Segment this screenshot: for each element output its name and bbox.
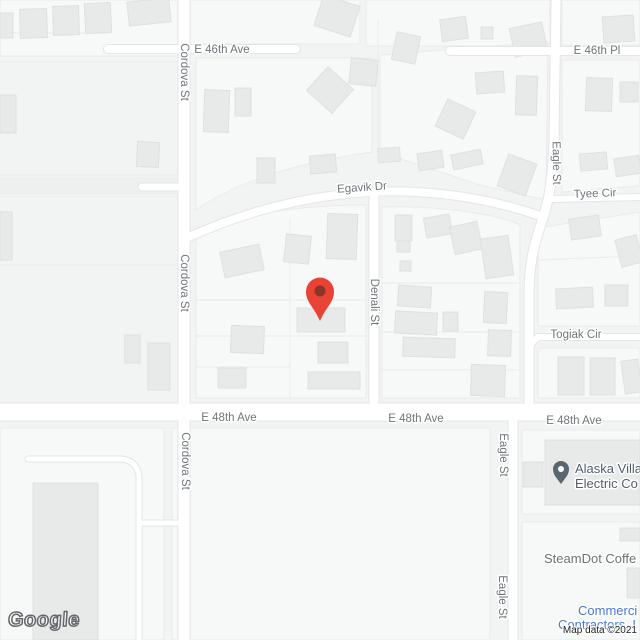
building-footprint (125, 335, 140, 363)
building-footprint (579, 152, 607, 171)
street-label: Cordova St (179, 432, 191, 490)
building-footprint (605, 285, 628, 306)
street-label: E 48th Ave (546, 415, 601, 427)
marker-pin-inner-circle (315, 286, 326, 297)
building-footprint (488, 330, 512, 357)
building-footprint (391, 32, 420, 64)
building-footprint (440, 16, 469, 41)
google-logo[interactable]: Google (7, 609, 80, 632)
poi-label-line[interactable]: Electric Co (575, 476, 638, 491)
building-footprint (284, 234, 312, 264)
building-footprint (148, 343, 170, 390)
street-label: E 48th Ave (201, 412, 256, 424)
block-s-mid (172, 428, 490, 640)
street-label: Cordova St (178, 254, 190, 312)
street-label: Denali St (368, 279, 380, 326)
poi-label-line[interactable]: Alaska Villa (575, 461, 640, 476)
map-viewport[interactable]: E 46th AveE 46th PlCordova StCordova StC… (0, 0, 640, 640)
building-footprint (395, 215, 412, 241)
building-footprint (0, 13, 13, 38)
building-footprint (378, 147, 401, 163)
building-footprint (475, 71, 504, 94)
building-footprint (449, 221, 482, 254)
building-footprint (136, 141, 159, 167)
poi-pin-dot (558, 466, 564, 472)
poi-label-line[interactable]: SteamDot Coffe (544, 551, 636, 566)
building-footprint (590, 358, 615, 395)
building-footprint (0, 95, 16, 133)
building-footprint (218, 368, 246, 388)
building-footprint (515, 76, 537, 116)
poi-steamdot-coffee[interactable]: SteamDot Coffe (544, 551, 636, 566)
street-label: E 46th Ave (194, 44, 249, 56)
building-footprint (349, 58, 379, 87)
building-footprint (443, 312, 458, 331)
building-footprint (203, 90, 229, 133)
building-footprint (523, 462, 543, 487)
map-attribution: Map data ©2021 (563, 625, 637, 636)
building-footprint (483, 291, 508, 323)
building-footprint (602, 15, 635, 43)
building-footprint (585, 78, 612, 112)
building-footprint (403, 337, 456, 358)
building-footprint (318, 342, 348, 363)
building-footprint (397, 285, 431, 308)
street-label: Togiak Cir (550, 329, 601, 341)
building-footprint (53, 6, 80, 36)
building-footprint (308, 372, 360, 389)
building-footprint (470, 364, 505, 396)
building-footprint (397, 241, 410, 252)
building-footprint (309, 154, 336, 174)
building-footprint (231, 325, 265, 353)
street-label: Tyee Cir (573, 187, 616, 200)
building-footprint (257, 158, 275, 183)
building-footprint (84, 2, 112, 33)
building-footprint (556, 287, 594, 309)
building-footprint (481, 27, 493, 39)
street-label: Eagle St (496, 575, 508, 619)
building-footprint (400, 261, 411, 271)
building-footprint (0, 212, 12, 260)
poi-label-line[interactable]: Commerci (578, 603, 637, 618)
building-footprint (558, 357, 584, 395)
building-footprint (569, 215, 602, 240)
building-footprint (417, 150, 444, 170)
street-label: Eagle St (550, 141, 563, 185)
street-label: Cordova St (178, 43, 190, 101)
map-canvas: E 46th AveE 46th PlCordova StCordova StC… (0, 0, 640, 640)
building-footprint (614, 155, 640, 176)
building-footprint (480, 235, 513, 279)
building-footprint (620, 82, 638, 102)
building-footprint (127, 0, 171, 26)
building-footprint (620, 528, 640, 541)
street-label: Eagle St (497, 433, 509, 477)
building-footprint (423, 214, 452, 238)
building-footprint (326, 213, 358, 259)
building-footprint (20, 9, 48, 39)
street-label: E 46th Pl (574, 45, 621, 57)
building-footprint (235, 88, 251, 116)
building-footprint (627, 568, 640, 598)
building-footprint (394, 311, 437, 335)
street-label: E 48th Ave (388, 413, 443, 425)
